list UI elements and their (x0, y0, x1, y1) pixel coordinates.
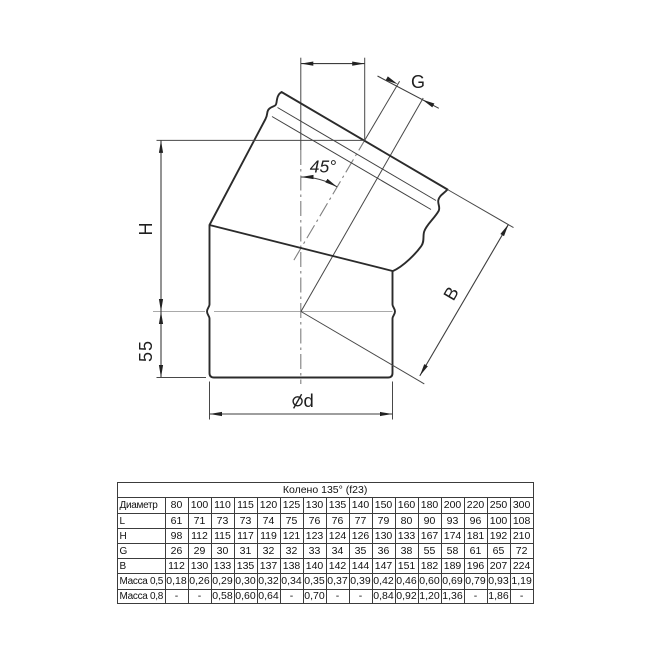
svg-text:45°: 45° (310, 157, 336, 177)
svg-text:55: 55 (136, 340, 156, 362)
svg-text:B: B (439, 283, 462, 303)
svg-text:d: d (304, 390, 314, 411)
svg-text:H: H (136, 223, 156, 236)
svg-text:G: G (411, 72, 425, 92)
